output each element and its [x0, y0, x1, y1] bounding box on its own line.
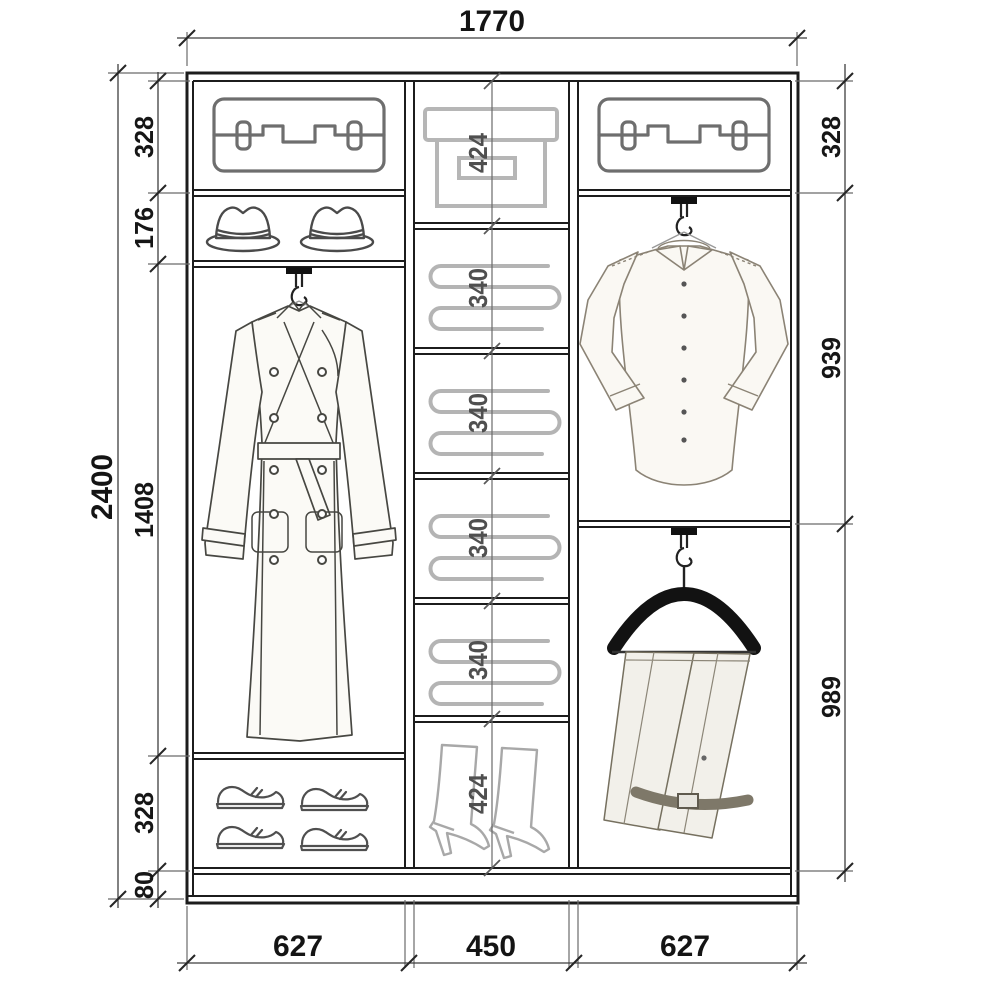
- right-section-1-label: 328: [816, 116, 846, 158]
- trousers-on-hanger-icon: [604, 528, 756, 838]
- bottom-width-1-label: 627: [273, 930, 323, 963]
- right-section-2-label: 939: [816, 337, 846, 379]
- drawing-canvas: 1770 2400 328 176 1408 328 80 328 939 98…: [0, 0, 1000, 1000]
- trench-coat-on-hanger-icon: [202, 267, 396, 741]
- rod-mount-hook-icon: [286, 267, 312, 305]
- hat-icon: [207, 208, 279, 251]
- shelf: [578, 521, 791, 527]
- shoe-icon: [301, 829, 368, 850]
- folded-linens-icon: [431, 266, 560, 329]
- divider-left: [405, 81, 414, 868]
- overall-height-label: 2400: [86, 454, 119, 520]
- center-section-5-label: 340: [463, 640, 493, 680]
- overall-width-label: 1770: [459, 5, 525, 38]
- left-section-1-label: 328: [129, 116, 159, 158]
- bottom-width-2-label: 450: [466, 930, 516, 963]
- suitcase-icon: [214, 99, 384, 171]
- left-section-5-label: 80: [129, 871, 159, 899]
- folded-linens-icon: [431, 516, 560, 579]
- wardrobe-technical-drawing: 1770 2400 328 176 1408 328 80 328 939 98…: [0, 0, 1000, 1000]
- rod-mount-hook-icon: [671, 197, 697, 235]
- left-section-2-label: 176: [129, 207, 159, 249]
- boot-icon: [490, 748, 549, 858]
- suitcase-icon: [599, 99, 769, 171]
- rod-mount-hook-icon: [671, 528, 697, 566]
- center-section-4-label: 340: [463, 518, 493, 558]
- top-width-dimension: 1770: [177, 5, 807, 66]
- shoe-icon: [217, 827, 284, 848]
- left-section-3-label: 1408: [129, 482, 159, 538]
- center-section-1-label: 424: [463, 133, 493, 173]
- left-sections-dimension: 328 176 1408 328 80: [129, 72, 190, 908]
- wooden-hanger-icon: [614, 594, 754, 648]
- shelf: [193, 753, 405, 759]
- center-section-6-label: 424: [463, 774, 493, 814]
- center-section-2-label: 340: [463, 268, 493, 308]
- hat-icon: [301, 208, 373, 251]
- shelf: [193, 261, 405, 267]
- shelf: [193, 190, 405, 196]
- bottom-width-3-label: 627: [660, 930, 710, 963]
- folded-linens-icon: [431, 391, 560, 454]
- folded-linens-icon: [431, 641, 560, 704]
- divider-right: [569, 81, 578, 868]
- right-sections-dimension: 328 939 989: [795, 64, 853, 882]
- bottom-widths-dimension: 627 450 627: [177, 900, 807, 971]
- shirt-on-hanger-icon: [580, 197, 788, 485]
- shelf: [578, 190, 791, 196]
- center-section-3-label: 340: [463, 393, 493, 433]
- right-section-3-label: 989: [816, 676, 846, 718]
- belt-buckle-icon: [678, 794, 698, 808]
- left-section-4-label: 328: [129, 792, 159, 834]
- shoe-icon: [217, 787, 284, 808]
- shoe-icon: [301, 789, 368, 810]
